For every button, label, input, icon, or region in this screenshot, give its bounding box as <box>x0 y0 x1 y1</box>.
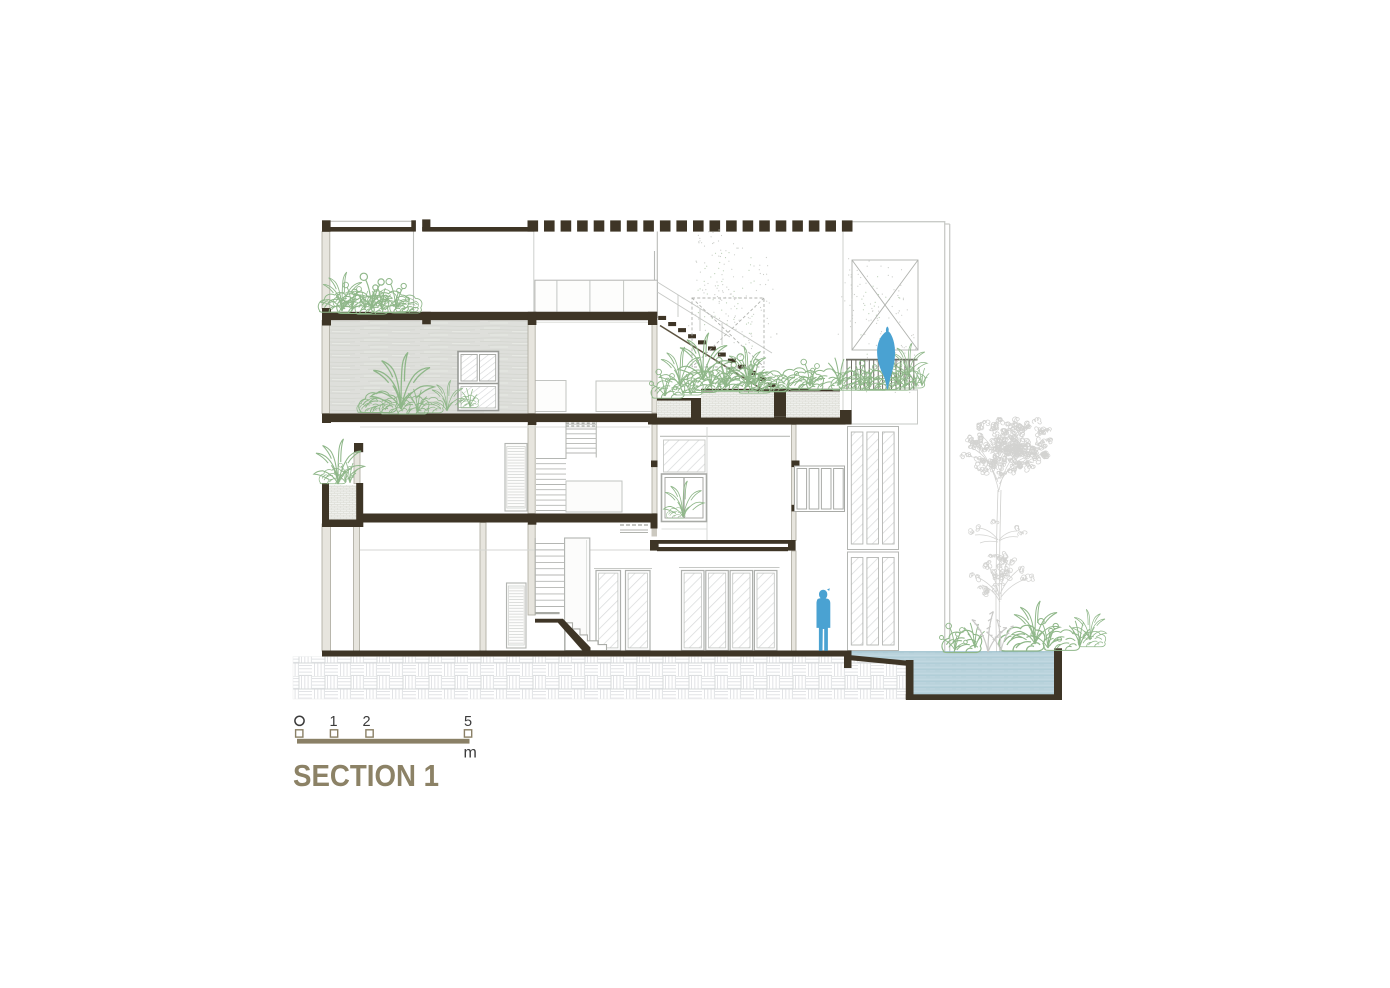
svg-text:SECTION 1: SECTION 1 <box>293 759 439 793</box>
svg-text:2: 2 <box>363 714 371 730</box>
svg-text:5: 5 <box>464 714 472 730</box>
svg-text:m: m <box>464 745 477 762</box>
svg-text:1: 1 <box>330 714 338 730</box>
